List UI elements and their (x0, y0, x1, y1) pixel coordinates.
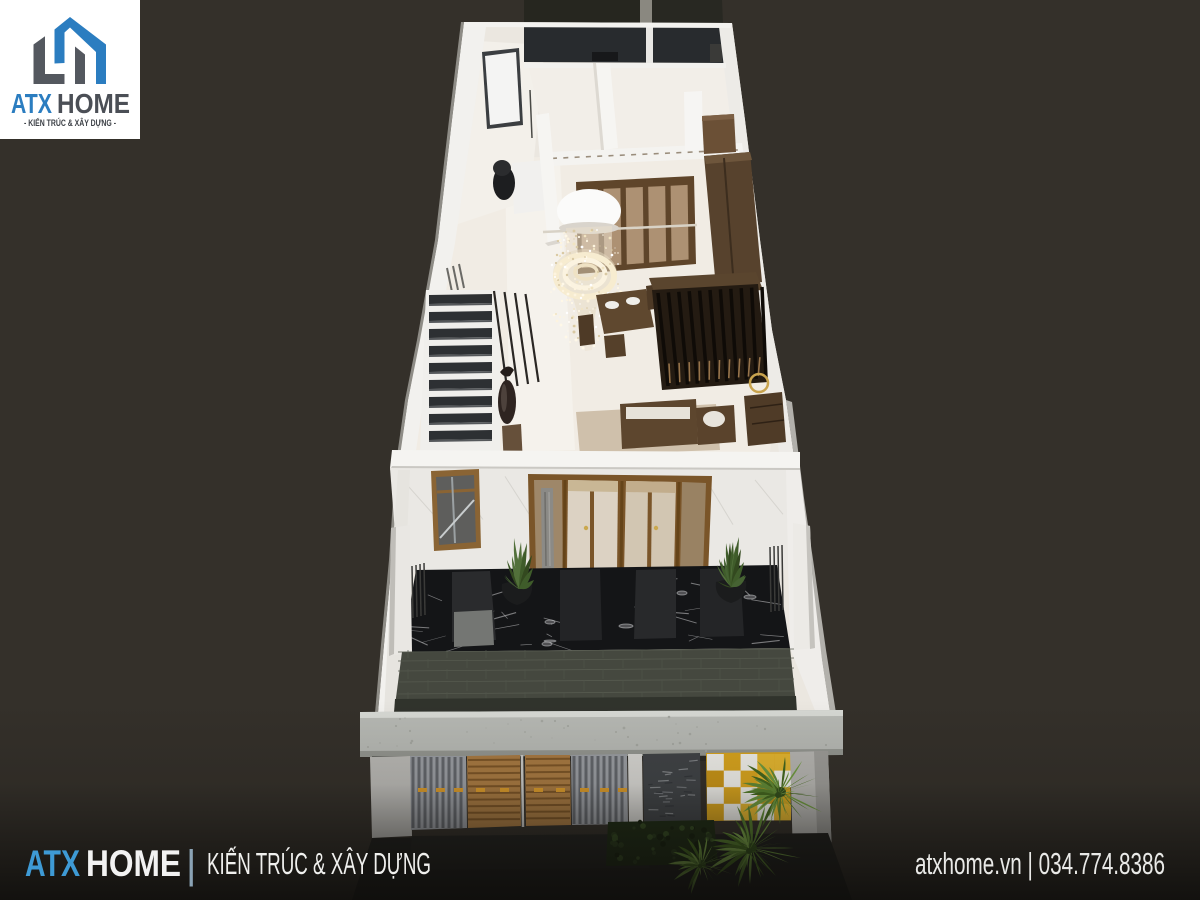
svg-text:atxhome.vn | 034.774.8386: atxhome.vn | 034.774.8386 (915, 846, 1165, 881)
svg-text:HOME: HOME (86, 843, 181, 884)
svg-text:ATX: ATX (25, 843, 80, 884)
svg-text:ATX: ATX (11, 88, 52, 119)
svg-text:|: | (186, 843, 196, 887)
svg-text:HOME: HOME (57, 88, 130, 119)
svg-text:KIẾN TRÚC & XÂY DỰNG: KIẾN TRÚC & XÂY DỰNG (207, 846, 431, 881)
svg-text:- KIẾN TRÚC & XÂY DỰNG -: - KIẾN TRÚC & XÂY DỰNG - (24, 117, 116, 128)
